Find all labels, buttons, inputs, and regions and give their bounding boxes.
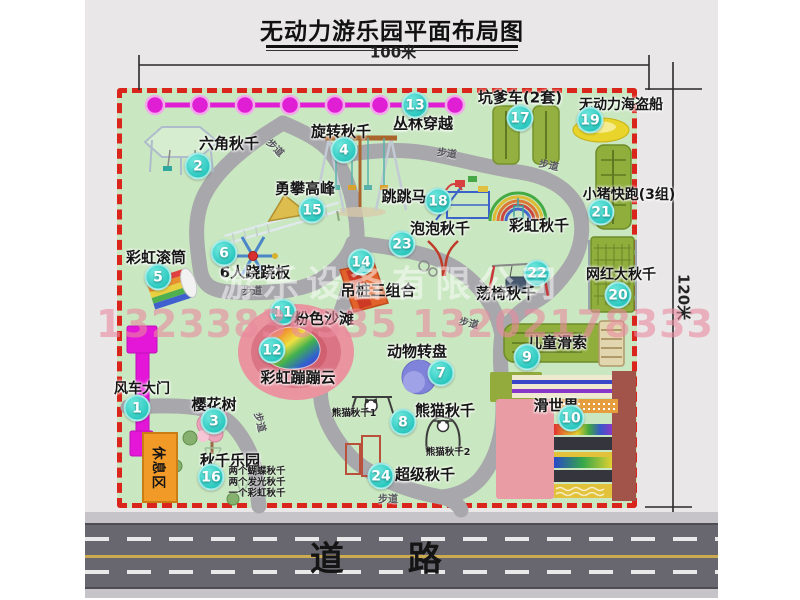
attraction-badge-19: 19 — [577, 107, 604, 134]
attraction-badge-9: 9 — [514, 344, 541, 371]
rest-area-label: 休息区 — [150, 446, 170, 490]
attraction-badge-24: 24 — [368, 463, 395, 490]
attraction-badge-13: 13 — [402, 92, 429, 119]
panda-swing-2-sublabel: 熊猫秋千2 — [426, 444, 471, 458]
walkway-tag-7: 步道 — [378, 491, 398, 506]
rest-area: 休息区 — [142, 432, 178, 503]
attraction-badge-23: 23 — [389, 231, 416, 258]
attraction-label-8: 熊猫秋千 — [415, 400, 475, 421]
attraction-badge-17: 17 — [507, 105, 534, 132]
screenshot-canvas: 无动力游乐园平面布局图 100米 120米 — [0, 0, 800, 600]
attraction-badge-7: 7 — [428, 360, 455, 387]
rainbow-swing-label: 彩虹秋千 — [509, 215, 569, 236]
attraction-badge-2: 2 — [185, 153, 212, 180]
watermark-company: 游乐设备有限公司 — [220, 255, 564, 307]
road-sidewalk-bottom — [85, 589, 718, 598]
road-sidewalk-top — [85, 512, 718, 523]
watermark-phone: 13233836335 13202178333 — [96, 302, 714, 346]
attraction-label-24: 超级秋千 — [395, 464, 455, 485]
attraction-badge-16: 16 — [198, 464, 225, 491]
attraction-label-15: 勇攀高峰 — [275, 178, 335, 199]
attraction-badge-3: 3 — [201, 408, 228, 435]
attraction-badge-4: 4 — [331, 137, 358, 164]
attraction-badge-10: 10 — [558, 405, 585, 432]
attraction-badge-1: 1 — [124, 395, 151, 422]
attraction-badge-21: 21 — [588, 199, 615, 226]
attraction-badge-18: 18 — [425, 188, 452, 215]
swing-park-sublabel-3: 一个彩虹秋千 — [228, 485, 285, 499]
road-label: 道 路 — [310, 532, 468, 581]
attraction-badge-5: 5 — [145, 264, 172, 291]
attraction-label-2: 六角秋千 — [199, 133, 259, 154]
width-dimension-label: 100米 — [370, 42, 416, 63]
attraction-label-12: 彩虹蹦蹦云 — [260, 367, 335, 388]
attraction-label-18: 跳跳马 — [381, 186, 426, 207]
road: 道 路 — [85, 512, 718, 598]
attraction-badge-15: 15 — [299, 197, 326, 224]
walkway-tag-2: 步道 — [436, 143, 458, 161]
attraction-badge-8: 8 — [390, 409, 417, 436]
attraction-label-23: 泡泡秋千 — [410, 218, 470, 239]
panda-swing-1-sublabel: 熊猫秋千1 — [332, 405, 377, 419]
